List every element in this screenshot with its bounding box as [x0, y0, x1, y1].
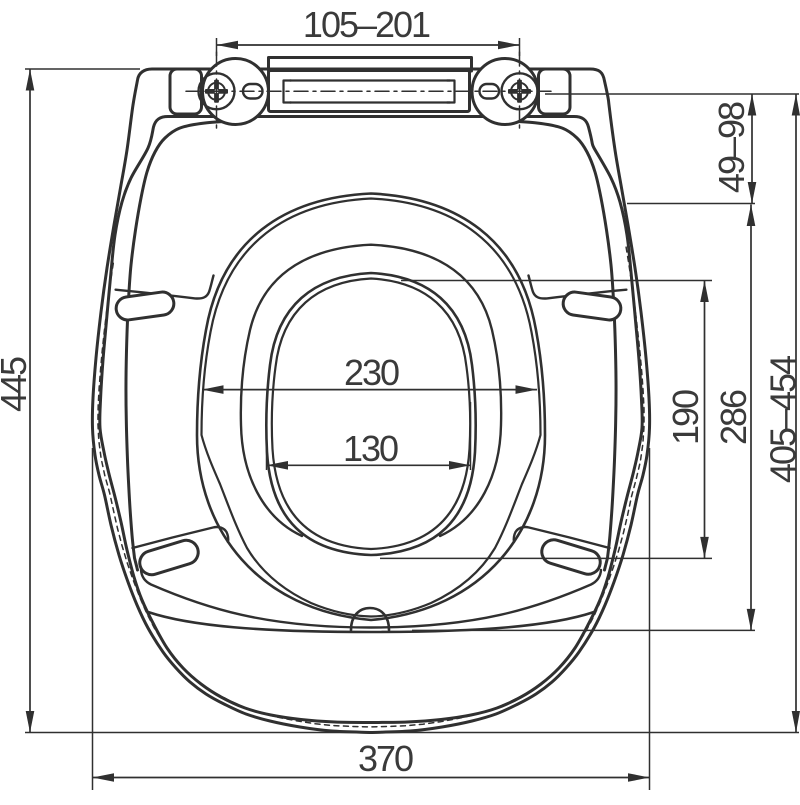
svg-text:49–98: 49–98 [711, 102, 752, 193]
svg-text:370: 370 [358, 738, 413, 779]
svg-text:405–454: 405–454 [763, 356, 800, 483]
svg-text:230: 230 [344, 352, 399, 393]
svg-text:286: 286 [713, 390, 754, 445]
svg-text:445: 445 [0, 357, 34, 412]
svg-text:190: 190 [665, 390, 706, 445]
svg-text:130: 130 [343, 428, 398, 469]
svg-text:105–201: 105–201 [303, 4, 430, 45]
